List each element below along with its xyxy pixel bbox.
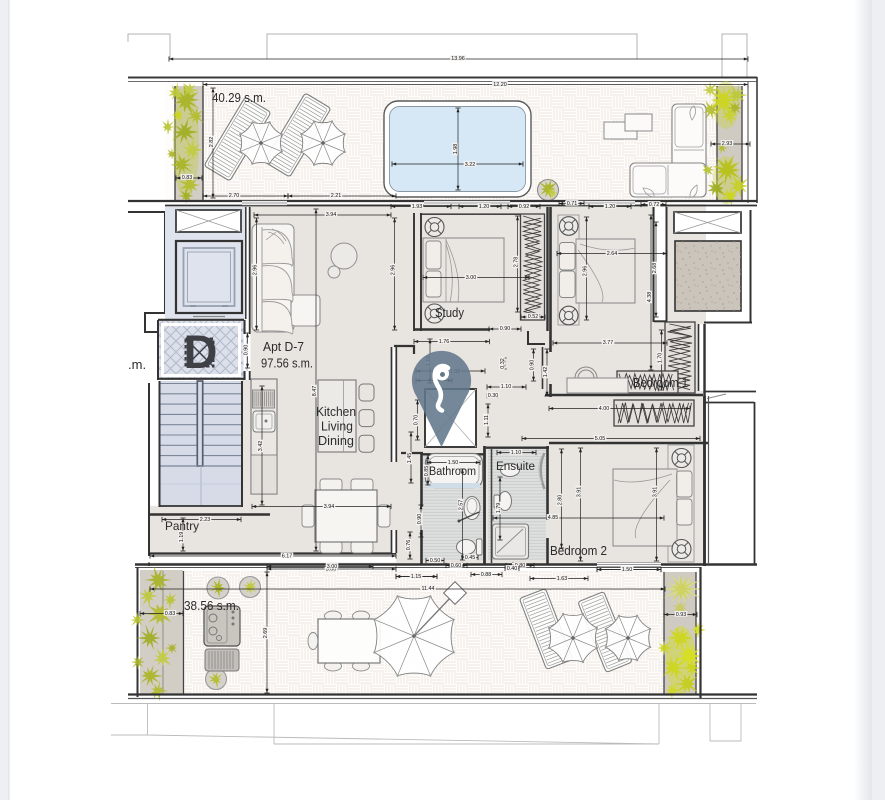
svg-text:0.85: 0.85 [424,466,430,477]
svg-text:3.00: 3.00 [327,564,338,570]
svg-text:0.90: 0.90 [500,326,511,332]
svg-text:0.92: 0.92 [519,204,530,210]
svg-text:3.42: 3.42 [258,441,264,452]
svg-text:0.76: 0.76 [406,540,412,551]
svg-text:3.94: 3.94 [324,504,335,510]
svg-text:2.80: 2.80 [557,495,563,506]
svg-text:2.23: 2.23 [200,517,211,523]
svg-text:3.91: 3.91 [652,487,658,498]
svg-text:2.93: 2.93 [722,141,733,147]
svg-text:0.83: 0.83 [165,611,176,617]
svg-text:1.98: 1.98 [453,144,459,155]
svg-text:0.71: 0.71 [567,201,578,207]
svg-text:1.42: 1.42 [543,367,549,378]
svg-text:0.60: 0.60 [451,563,462,569]
svg-text:0.90: 0.90 [417,514,423,525]
svg-text:1.50: 1.50 [448,460,459,466]
svg-text:2.96: 2.96 [252,265,258,276]
svg-text:1.76: 1.76 [439,339,450,345]
svg-text:4.38: 4.38 [647,292,653,303]
svg-text:4.00: 4.00 [599,406,610,412]
svg-text:Ensuite: Ensuite [496,461,535,473]
svg-text:6.17: 6.17 [282,553,293,559]
svg-text:Dining: Dining [318,434,354,448]
svg-text:0.32: 0.32 [500,358,506,369]
svg-text:Bedroom 1: Bedroom 1 [633,376,688,390]
svg-text:13.96: 13.96 [451,56,465,62]
svg-text:2.78: 2.78 [513,257,519,268]
svg-text:1.63: 1.63 [557,576,568,582]
svg-text:0.45: 0.45 [465,555,476,561]
svg-text:2.96: 2.96 [391,265,397,276]
svg-text:0.70: 0.70 [413,415,419,426]
svg-text:D: D [184,325,218,378]
svg-text:3.00: 3.00 [466,275,477,281]
svg-text:2.96: 2.96 [582,266,588,277]
svg-text:1.93: 1.93 [412,204,423,210]
svg-text:2.69: 2.69 [263,628,269,639]
svg-text:1.10: 1.10 [501,384,512,390]
svg-text:2.21: 2.21 [331,193,342,199]
svg-text:1.19: 1.19 [179,532,185,543]
svg-text:1.50: 1.50 [622,567,633,573]
svg-text:3.94: 3.94 [326,212,337,218]
svg-text:2.57: 2.57 [458,500,464,511]
svg-text:0.40: 0.40 [507,566,518,572]
svg-text:Bedroom 2: Bedroom 2 [550,544,607,558]
svg-text:Apt D-7: Apt D-7 [263,339,304,354]
svg-text:1.20: 1.20 [479,204,490,210]
svg-text:0.52: 0.52 [528,314,539,320]
svg-text:Bathroom: Bathroom [429,466,476,478]
svg-text:2.70: 2.70 [229,193,240,199]
svg-text:Living: Living [321,420,353,434]
svg-text:0.72: 0.72 [649,202,660,208]
svg-text:1.79: 1.79 [496,503,502,514]
svg-text:1.20: 1.20 [605,204,616,210]
svg-text:0.30: 0.30 [488,393,499,399]
svg-text:0.50: 0.50 [430,558,441,564]
svg-text:0.93: 0.93 [676,612,687,618]
svg-text:2.82: 2.82 [209,137,215,148]
svg-text:97.56 s.m.: 97.56 s.m. [261,356,313,371]
svg-text:1.11: 1.11 [484,415,490,425]
svg-text:3.77: 3.77 [603,340,614,346]
svg-text:8.47: 8.47 [312,386,318,397]
svg-text:0.88: 0.88 [481,572,492,578]
svg-text:38.56 s.m.: 38.56 s.m. [184,599,239,613]
svg-text:40.29 s.m.: 40.29 s.m. [212,91,266,105]
svg-text:3.91: 3.91 [576,487,582,498]
svg-text:1.45: 1.45 [407,453,413,464]
svg-text:12.20: 12.20 [493,82,507,88]
svg-text:1.10: 1.10 [511,450,522,456]
svg-text:Study: Study [435,306,465,320]
svg-text:2.68: 2.68 [652,263,658,274]
svg-text:.m.: .m. [128,357,146,372]
svg-text:2.64: 2.64 [607,251,618,257]
svg-text:1.70: 1.70 [657,353,663,364]
svg-text:1.15: 1.15 [411,574,422,580]
svg-text:0.90: 0.90 [529,360,535,371]
svg-text:5.05: 5.05 [595,436,606,442]
svg-text:11.44: 11.44 [421,586,434,592]
svg-text:0.90: 0.90 [243,345,249,356]
svg-text:0.83: 0.83 [182,175,193,181]
svg-text:Kitchen: Kitchen [316,405,356,419]
svg-text:4.85: 4.85 [548,515,559,521]
svg-text:3.22: 3.22 [465,162,476,168]
